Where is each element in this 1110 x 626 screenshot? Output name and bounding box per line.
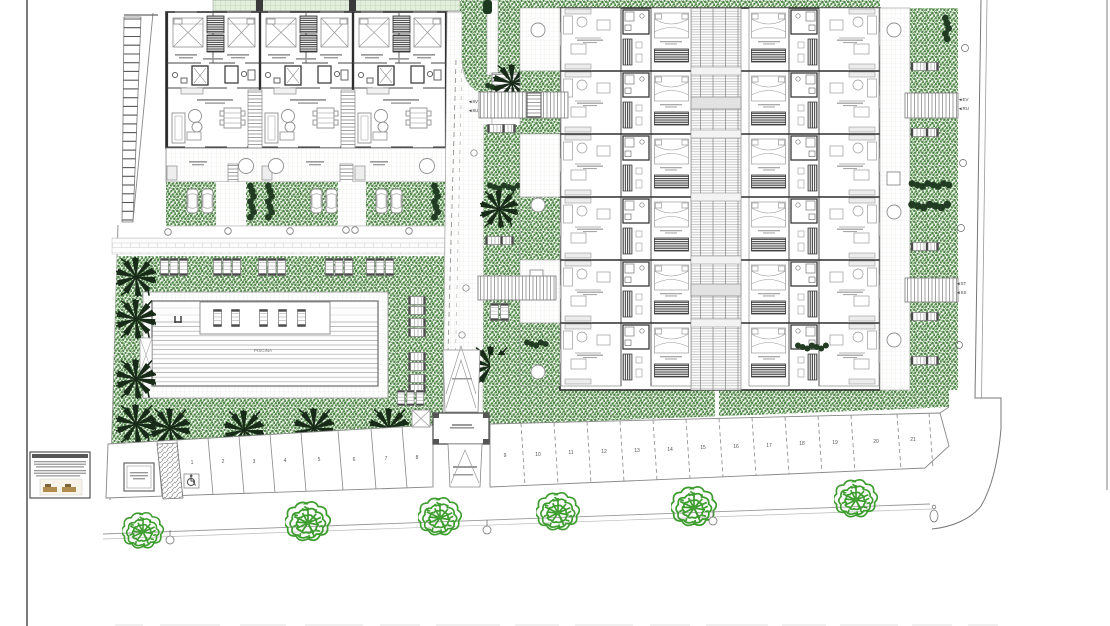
svg-text:◄SS: ◄SS [956, 290, 966, 295]
svg-text:19: 19 [832, 440, 838, 446]
svg-text:2: 2 [222, 459, 225, 465]
svg-text:7: 7 [385, 456, 388, 462]
svg-text:10: 10 [535, 452, 541, 458]
svg-text:PISCINA: PISCINA [254, 348, 272, 353]
svg-text:3: 3 [253, 459, 256, 465]
svg-text:◄EV: ◄EV [958, 97, 968, 102]
svg-text:◄RU: ◄RU [958, 106, 969, 111]
svg-text:16: 16 [733, 444, 739, 450]
svg-text:11: 11 [568, 450, 573, 456]
svg-text:21: 21 [910, 437, 916, 443]
svg-text:◄8U: ◄8U [468, 108, 478, 113]
svg-text:8: 8 [416, 455, 419, 461]
svg-text:15: 15 [700, 445, 706, 451]
svg-text:17: 17 [766, 443, 772, 449]
svg-text:5: 5 [318, 457, 321, 463]
svg-text:14: 14 [667, 447, 673, 453]
svg-text:9: 9 [504, 453, 507, 459]
svg-text:12: 12 [601, 449, 607, 455]
svg-text:13: 13 [634, 448, 640, 454]
svg-text:20: 20 [873, 439, 879, 445]
svg-text:18: 18 [799, 441, 805, 447]
svg-text:6: 6 [353, 457, 356, 463]
svg-text:1: 1 [191, 460, 194, 466]
svg-text:◄ST: ◄ST [956, 281, 966, 286]
svg-text:◄8V: ◄8V [468, 99, 478, 104]
svg-text:4: 4 [284, 458, 287, 464]
